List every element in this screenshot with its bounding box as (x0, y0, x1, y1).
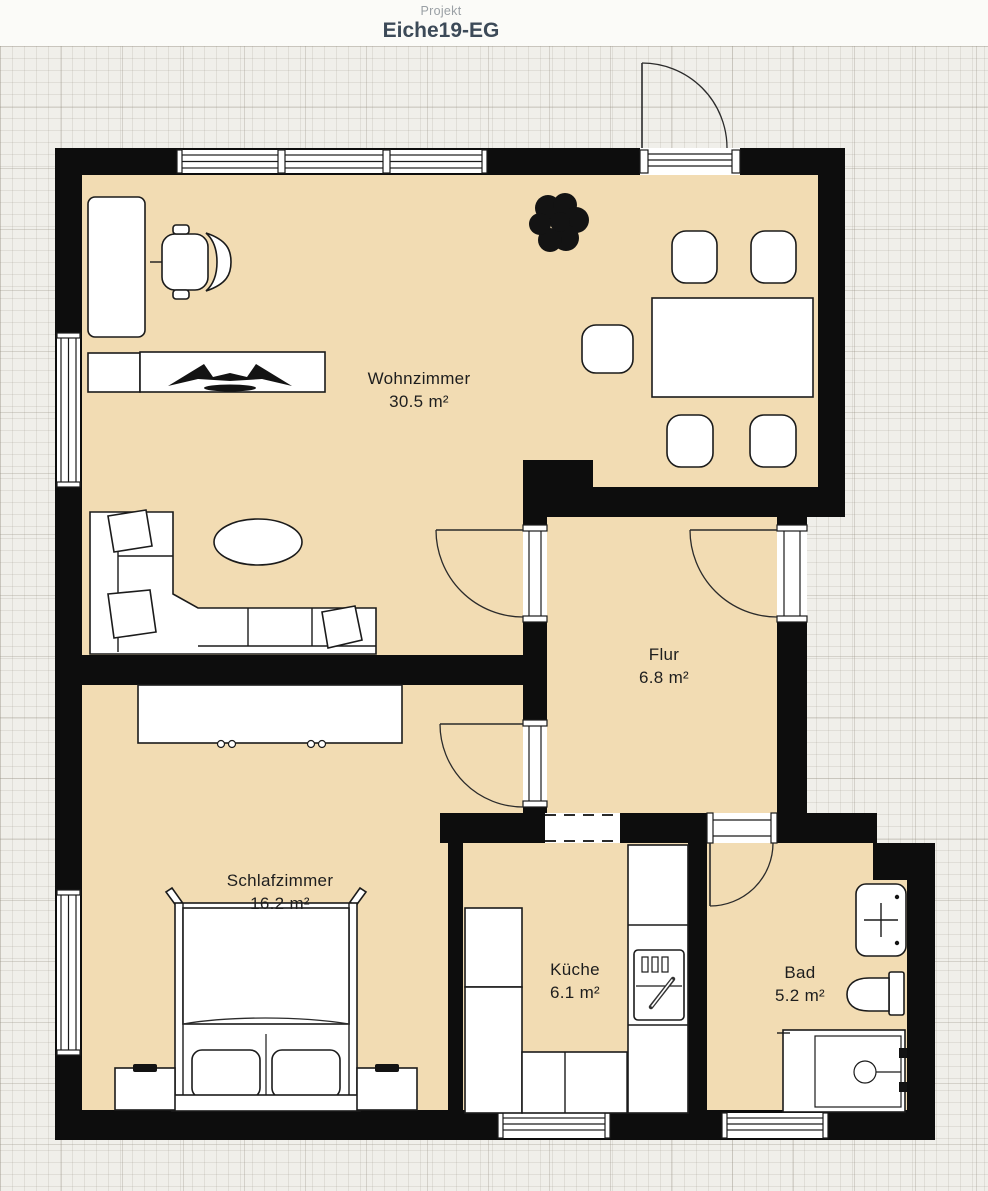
floorplan-drawing (0, 0, 988, 1191)
room-label-kueche: Küche 6.1 m² (550, 958, 600, 1004)
window-livingroom-top[interactable] (177, 150, 487, 173)
bathroom-sink[interactable] (856, 884, 906, 956)
room-area: 6.8 m² (639, 666, 689, 689)
room-area: 16.2 m² (227, 892, 334, 915)
stove[interactable] (634, 950, 684, 1020)
door-entrance-top[interactable] (640, 63, 740, 175)
room-area: 30.5 m² (368, 390, 471, 413)
window-livingroom-left[interactable] (57, 333, 80, 487)
coffee-table[interactable] (214, 519, 302, 565)
shower[interactable] (777, 1030, 907, 1112)
desk[interactable] (88, 197, 145, 337)
dining-chair[interactable] (582, 325, 633, 373)
floorplan-canvas: Projekt Eiche19-EG (0, 0, 988, 1191)
dining-table[interactable] (652, 298, 813, 397)
room-label-schlafzimmer: Schlafzimmer 16.2 m² (227, 869, 334, 915)
room-name: Wohnzimmer (368, 367, 471, 390)
dining-chair[interactable] (672, 231, 717, 283)
kitchen-cabinets-left[interactable] (465, 908, 522, 1113)
bed[interactable] (166, 888, 366, 1111)
room-name: Bad (775, 961, 825, 984)
room-area: 6.1 m² (550, 981, 600, 1004)
room-area: 5.2 m² (775, 984, 825, 1007)
room-label-bad: Bad 5.2 m² (775, 961, 825, 1007)
room-name: Schlafzimmer (227, 869, 334, 892)
nightstand-left[interactable] (115, 1064, 175, 1110)
dining-chair[interactable] (750, 415, 796, 467)
window-kitchen-bottom[interactable] (498, 1113, 610, 1138)
opening-kitchen[interactable] (545, 813, 620, 843)
wardrobe[interactable] (138, 685, 402, 748)
room-name: Küche (550, 958, 600, 981)
room-label-flur: Flur 6.8 m² (639, 643, 689, 689)
dining-chair[interactable] (751, 231, 796, 283)
room-label-wohnzimmer: Wohnzimmer 30.5 m² (368, 367, 471, 413)
dining-chair[interactable] (667, 415, 713, 467)
nightstand-right[interactable] (357, 1064, 417, 1110)
tv-sideboard[interactable] (88, 352, 325, 392)
room-name: Flur (639, 643, 689, 666)
window-bath-bottom[interactable] (722, 1113, 828, 1138)
window-bedroom-left[interactable] (57, 890, 80, 1055)
